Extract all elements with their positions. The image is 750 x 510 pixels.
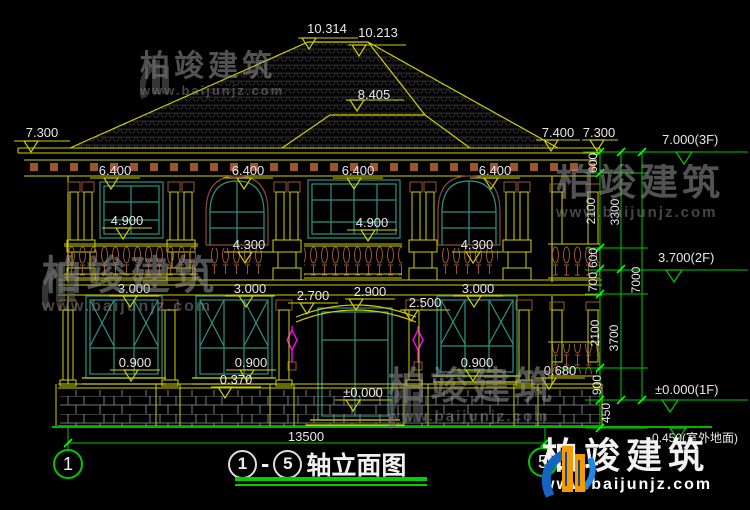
axis-bubble-5: 5 xyxy=(528,447,558,477)
level-label-3f: 7.000(3F) xyxy=(662,133,718,146)
title-underline xyxy=(235,477,427,481)
plinth xyxy=(56,384,602,426)
elev-label: 0.370 xyxy=(220,373,253,386)
level-label-2f: 3.700(2F) xyxy=(658,251,714,264)
dim-value: 600 xyxy=(587,248,599,268)
elev-label: 0.900 xyxy=(235,356,268,369)
elev-label: 2.700 xyxy=(297,289,330,302)
cad-elevation-drawing: 10.314 10.213 8.405 7.300 7.400 7.300 6.… xyxy=(0,0,750,510)
elev-label: 7.400 xyxy=(542,126,575,139)
dim-value: 900 xyxy=(591,375,603,395)
elev-label: 2.900 xyxy=(354,285,387,298)
dim-value: 2100 xyxy=(585,198,597,225)
title-dash: - xyxy=(261,450,269,479)
elev-label: 10.213 xyxy=(358,26,398,39)
elev-label: 7.300 xyxy=(583,126,616,139)
elev-label: 3.000 xyxy=(234,282,267,295)
elev-label: 7.300 xyxy=(26,126,59,139)
elev-label: ±0.000 xyxy=(343,386,383,399)
dim-value: 600 xyxy=(587,153,599,173)
elev-label: 6.400 xyxy=(479,164,512,177)
dim-value: 3700 xyxy=(608,325,620,352)
elev-label: 2.500 xyxy=(409,296,442,309)
title-underline-thin xyxy=(235,484,427,486)
elev-label: 4.900 xyxy=(111,214,144,227)
elev-label: 0.680 xyxy=(544,364,577,377)
wall-lamp-icon xyxy=(413,326,423,370)
dim-value: 2100 xyxy=(589,320,601,347)
elev-label: 10.314 xyxy=(307,22,347,35)
level-label-1f: ±0.000(1F) xyxy=(655,383,719,396)
elev-label: 8.405 xyxy=(358,88,391,101)
elev-label: 4.300 xyxy=(233,238,266,251)
elev-label: 0.900 xyxy=(461,356,494,369)
elev-label: 6.400 xyxy=(232,164,265,177)
dim-value: 7000 xyxy=(630,267,642,294)
axis-bubble-1: 1 xyxy=(53,449,83,479)
level-label-ground: -0.450(室外地面) xyxy=(648,432,738,444)
dim-value: 450 xyxy=(600,403,612,423)
overall-width-label: 13500 xyxy=(288,430,324,443)
elev-label: 4.900 xyxy=(356,216,389,229)
elev-label: 0.900 xyxy=(119,356,152,369)
elev-label: 4.300 xyxy=(461,238,494,251)
elev-label: 6.400 xyxy=(342,164,375,177)
title-axis-from: 1 xyxy=(228,450,257,479)
dim-value: 700 xyxy=(587,272,599,292)
elev-label: 6.400 xyxy=(99,164,132,177)
elev-label: 3.000 xyxy=(118,282,151,295)
drawing-geometry xyxy=(0,0,750,510)
roof xyxy=(70,42,558,148)
dim-value: 3300 xyxy=(609,199,621,226)
title-axis-to: 5 xyxy=(273,450,302,479)
elev-label: 3.000 xyxy=(462,282,495,295)
